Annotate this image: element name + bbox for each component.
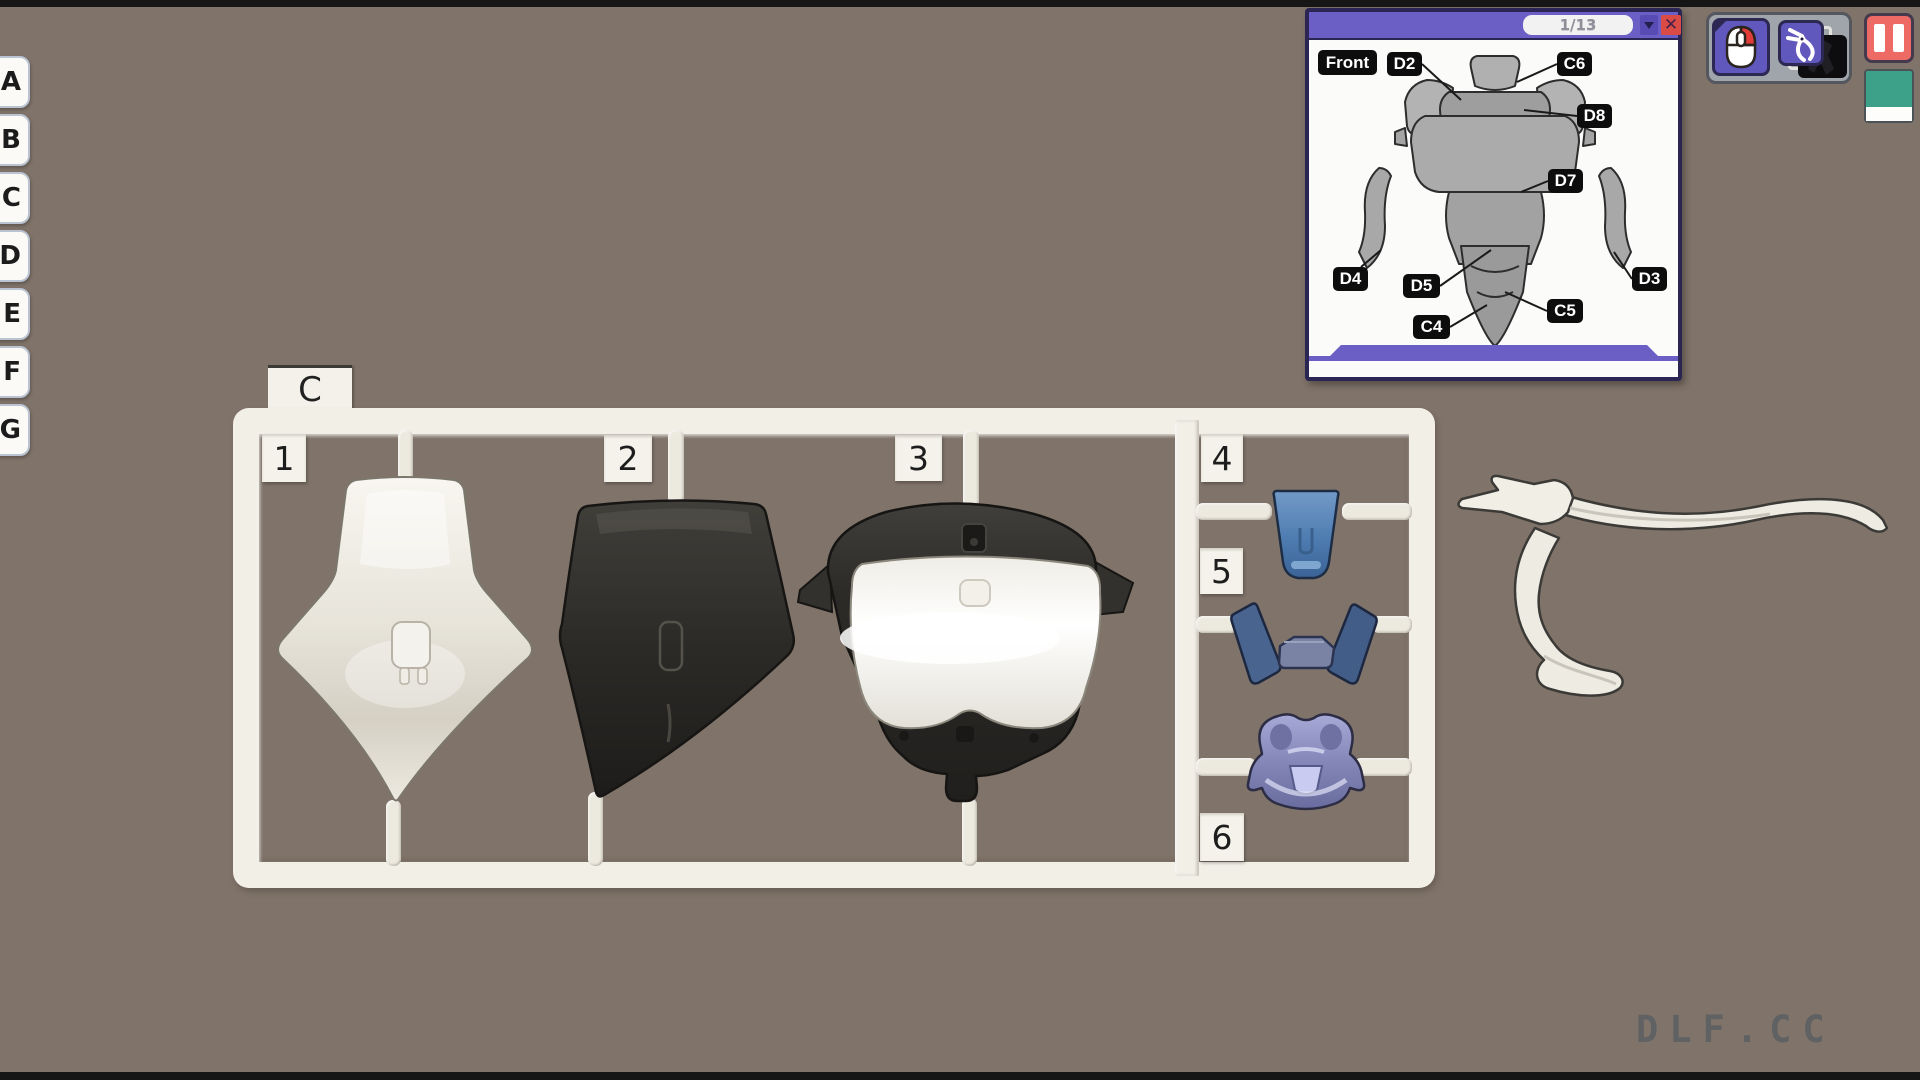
part-c2-black-torso[interactable] bbox=[556, 494, 798, 806]
confirm-strip bbox=[1866, 107, 1912, 121]
slot-number-tag: 4 bbox=[1201, 434, 1243, 482]
pause-icon bbox=[1893, 24, 1904, 52]
part-label-d8: D8 bbox=[1577, 104, 1612, 128]
runner-divider-rail bbox=[1175, 420, 1199, 876]
label-text: C5 bbox=[1554, 301, 1576, 321]
label-text: D5 bbox=[1411, 276, 1433, 296]
page-indicator-text: 1/13 bbox=[1560, 16, 1597, 34]
watermark-text: DLF.CC bbox=[1636, 1008, 1836, 1051]
tab-label: B bbox=[1, 125, 21, 155]
nipper-icon bbox=[1781, 23, 1821, 63]
letterbox-bottom bbox=[0, 1072, 1920, 1080]
close-button[interactable]: ✕ bbox=[1661, 15, 1681, 35]
slot-number: 4 bbox=[1212, 439, 1233, 478]
part-label-d4: D4 bbox=[1333, 267, 1368, 291]
tab-label: C bbox=[2, 183, 21, 213]
manual-footer bbox=[1309, 345, 1678, 361]
label-text: C6 bbox=[1564, 54, 1586, 74]
part-c1-white-back-armor[interactable] bbox=[272, 474, 538, 808]
label-text: D7 bbox=[1555, 171, 1577, 191]
pause-button[interactable] bbox=[1864, 13, 1914, 63]
manual-titlebar[interactable]: 1/13 ✕ bbox=[1309, 12, 1678, 40]
runner-stub bbox=[1196, 503, 1272, 520]
view-label-text: Front bbox=[1326, 53, 1369, 73]
pause-icon bbox=[1874, 24, 1885, 52]
part-c3-chest-unit[interactable] bbox=[790, 486, 1162, 808]
slot-number: 6 bbox=[1212, 818, 1233, 857]
mouse-icon bbox=[1715, 21, 1767, 73]
slot-number-tag: 6 bbox=[1200, 813, 1244, 861]
runner-stub bbox=[1342, 503, 1412, 520]
tab-label: F bbox=[3, 357, 21, 387]
part-label-d3: D3 bbox=[1632, 267, 1667, 291]
part-label-c6: C6 bbox=[1557, 52, 1592, 76]
part-label-d5: D5 bbox=[1403, 274, 1440, 298]
slot-number-tag: 3 bbox=[895, 435, 942, 481]
instruction-manual-window: 1/13 ✕ bbox=[1305, 8, 1682, 381]
manual-diagram-page: Front D2 C6 D8 D7 D4 D5 D3 C5 C4 bbox=[1309, 40, 1678, 361]
tab-label: E bbox=[3, 299, 21, 329]
runner-stub bbox=[386, 800, 401, 866]
view-label: Front bbox=[1318, 50, 1377, 75]
tab-label: A bbox=[1, 67, 21, 97]
sidebar-tab-c[interactable]: C bbox=[0, 172, 30, 224]
part-c6-chest-vent[interactable] bbox=[1246, 710, 1366, 812]
part-label-d2: D2 bbox=[1387, 52, 1422, 76]
sidebar-tab-d[interactable]: D bbox=[0, 230, 30, 282]
slot-number-tag: 2 bbox=[604, 435, 652, 482]
part-c4-blue-waist-plate[interactable] bbox=[1266, 488, 1346, 586]
part-label-c4: C4 bbox=[1413, 315, 1450, 339]
page-indicator: 1/13 bbox=[1523, 15, 1633, 35]
slot-number: 3 bbox=[908, 439, 929, 478]
mouse-controls-button[interactable] bbox=[1712, 18, 1770, 76]
sidebar-tab-f[interactable]: F bbox=[0, 346, 30, 398]
label-text: D2 bbox=[1394, 54, 1416, 74]
sidebar-tab-g[interactable]: G bbox=[0, 404, 30, 456]
close-icon: ✕ bbox=[1664, 15, 1678, 35]
part-label-d7: D7 bbox=[1548, 169, 1583, 193]
assembly-diagram bbox=[1309, 40, 1678, 361]
label-text: D3 bbox=[1639, 269, 1661, 289]
sidebar-tab-a[interactable]: A bbox=[0, 56, 30, 108]
label-text: D8 bbox=[1584, 106, 1606, 126]
slot-number: 1 bbox=[274, 439, 295, 478]
label-text: C4 bbox=[1421, 317, 1443, 337]
slot-number-tag: 5 bbox=[1200, 548, 1243, 594]
part-label-c5: C5 bbox=[1547, 299, 1583, 323]
nipper-tool[interactable] bbox=[1440, 460, 1900, 720]
letterbox-top bbox=[0, 0, 1920, 7]
runner-stub bbox=[668, 430, 684, 504]
chevron-down-icon bbox=[1644, 22, 1654, 29]
color-confirm-button[interactable] bbox=[1864, 69, 1914, 123]
slot-number: 5 bbox=[1211, 552, 1232, 591]
game-screen: A B C D E F G C 1 2 3 4 5 6 bbox=[0, 0, 1920, 1080]
sidebar-tab-b[interactable]: B bbox=[0, 114, 30, 166]
tab-label: G bbox=[0, 415, 21, 445]
part-c5-collar-straps[interactable] bbox=[1228, 600, 1380, 688]
label-text: D4 bbox=[1340, 269, 1362, 289]
runner-stub bbox=[962, 798, 977, 866]
sidebar-tab-e[interactable]: E bbox=[0, 288, 30, 340]
runner-letter: C bbox=[298, 370, 322, 410]
page-dropdown-button[interactable] bbox=[1640, 15, 1658, 35]
watermark: DLF.CC bbox=[1636, 1008, 1836, 1051]
runner-letter-tag: C bbox=[268, 365, 352, 411]
nipper-tool-button[interactable] bbox=[1778, 20, 1824, 66]
tab-label: D bbox=[0, 241, 21, 271]
slot-number: 2 bbox=[618, 439, 639, 478]
